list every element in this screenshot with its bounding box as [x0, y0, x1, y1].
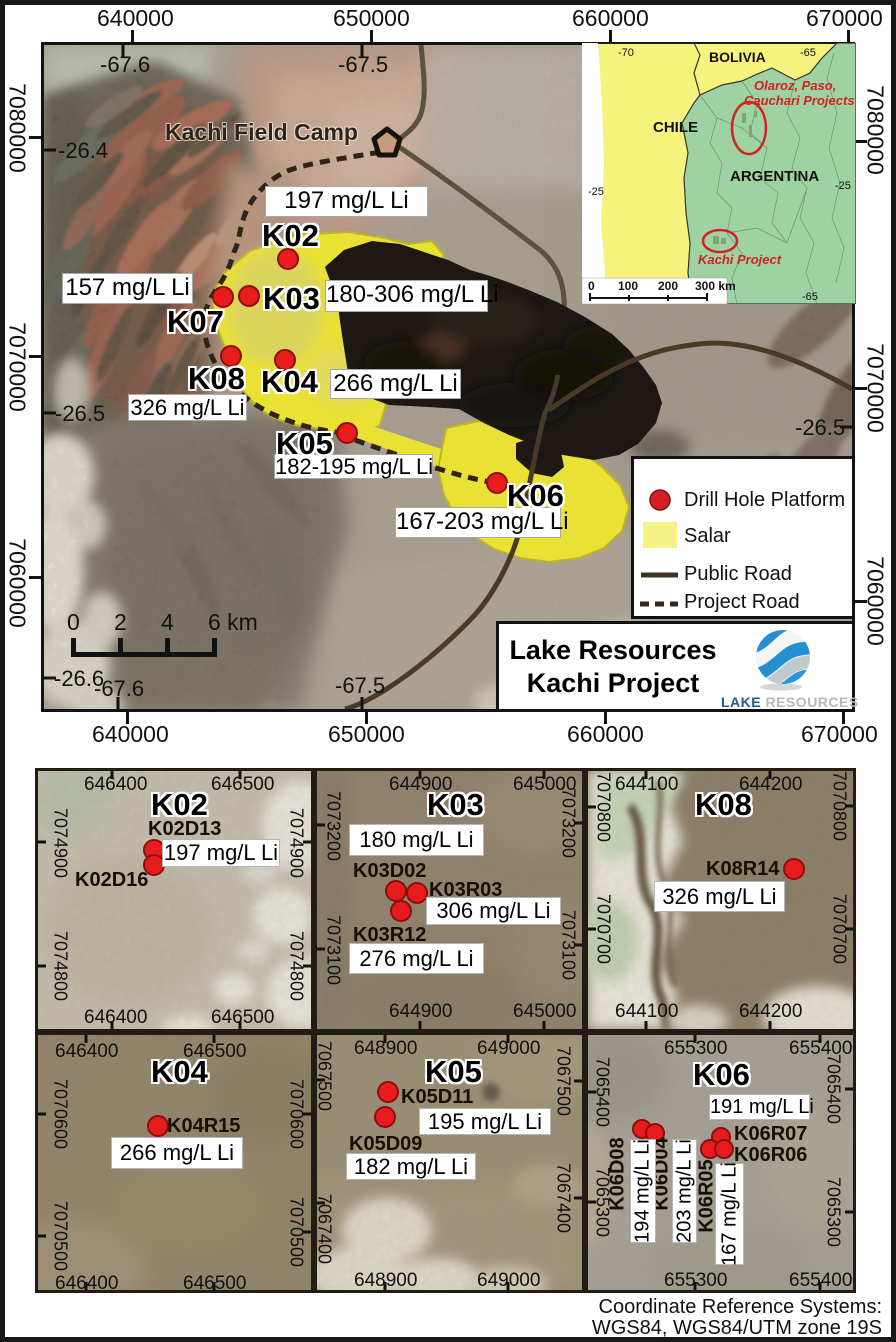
svg-text:-67.6: -67.6	[94, 676, 144, 701]
svg-text:-26.4: -26.4	[58, 138, 108, 163]
svg-text:-67.5: -67.5	[338, 52, 388, 77]
svg-text:0: 0	[588, 279, 595, 293]
svg-text:Cauchari Projects: Cauchari Projects	[744, 93, 855, 108]
svg-text:200: 200	[658, 279, 678, 293]
svg-text:-25: -25	[588, 186, 604, 198]
svg-text:CHILE: CHILE	[653, 119, 698, 136]
svg-text:4: 4	[161, 609, 174, 635]
svg-text:ARGENTINA: ARGENTINA	[730, 168, 819, 185]
svg-text:-65: -65	[802, 291, 818, 303]
svg-text:-65: -65	[800, 47, 816, 59]
svg-text:6 km: 6 km	[208, 609, 258, 635]
svg-text:BOLIVIA: BOLIVIA	[709, 49, 766, 65]
svg-text:0: 0	[67, 609, 80, 635]
svg-text:100: 100	[618, 279, 638, 293]
svg-text:-25: -25	[835, 180, 851, 192]
svg-text:-26.5: -26.5	[795, 415, 845, 440]
svg-text:-67.6: -67.6	[100, 52, 150, 77]
svg-text:-67.5: -67.5	[335, 673, 385, 698]
svg-text:-26.5: -26.5	[55, 401, 105, 426]
svg-text:Kachi Project: Kachi Project	[698, 252, 782, 267]
svg-text:Olaroz, Paso,: Olaroz, Paso,	[754, 78, 836, 93]
svg-text:-70: -70	[618, 47, 634, 59]
svg-text:300 km: 300 km	[695, 279, 736, 293]
svg-text:2: 2	[114, 609, 127, 635]
